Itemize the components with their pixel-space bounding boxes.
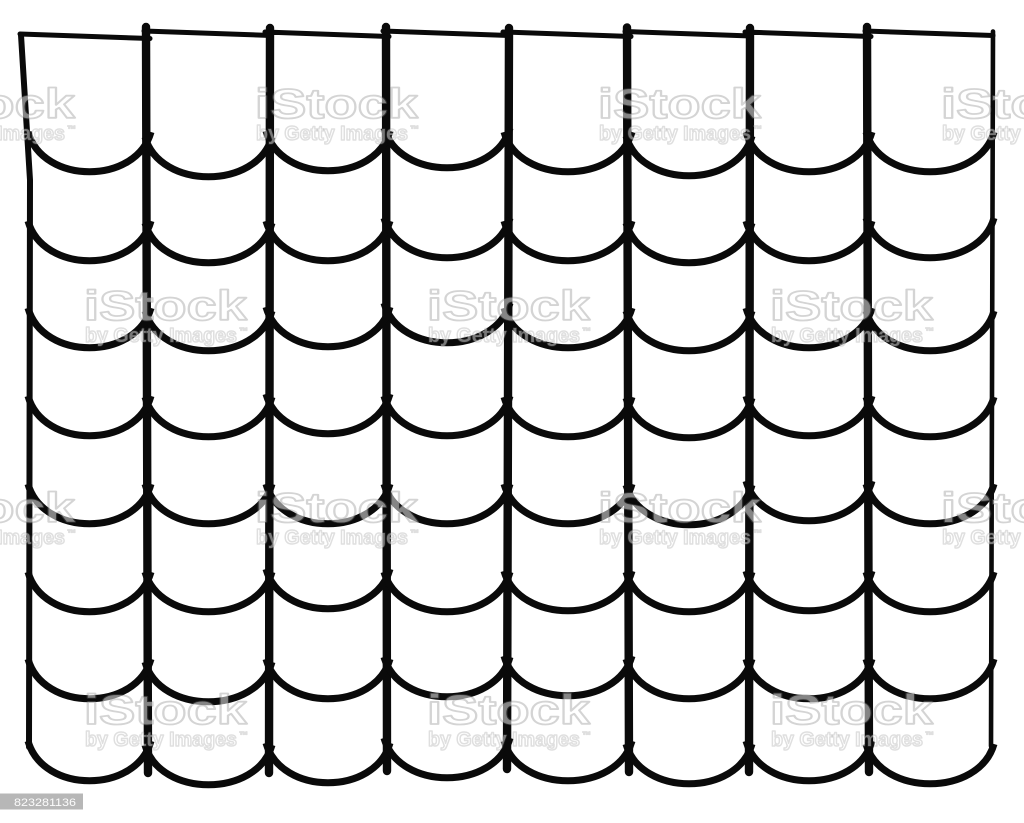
svg-text:iStock: iStock xyxy=(255,80,419,127)
svg-text:™: ™ xyxy=(410,124,419,134)
svg-text:iStock: iStock xyxy=(941,484,1024,531)
svg-text:iStock: iStock xyxy=(598,484,762,531)
svg-text:by Getty Images: by Getty Images xyxy=(428,325,580,347)
svg-text:iStock: iStock xyxy=(427,686,591,733)
svg-text:iStock: iStock xyxy=(255,484,419,531)
svg-text:™: ™ xyxy=(753,124,762,134)
svg-text:by Getty Images: by Getty Images xyxy=(256,123,408,145)
svg-text:by Getty Images: by Getty Images xyxy=(771,325,923,347)
svg-text:™: ™ xyxy=(239,326,248,336)
svg-text:iStock: iStock xyxy=(427,282,591,329)
svg-text:iStock: iStock xyxy=(0,484,76,531)
svg-text:™: ™ xyxy=(239,730,248,740)
svg-text:by Getty Images: by Getty Images xyxy=(85,729,237,751)
svg-text:™: ™ xyxy=(67,124,76,134)
svg-text:™: ™ xyxy=(67,528,76,538)
svg-text:by Getty Images: by Getty Images xyxy=(0,527,65,549)
svg-text:iStock: iStock xyxy=(0,80,76,127)
svg-text:by Getty Images: by Getty Images xyxy=(599,123,751,145)
svg-text:by Getty Images: by Getty Images xyxy=(942,527,1024,549)
svg-text:iStock: iStock xyxy=(84,686,248,733)
svg-text:™: ™ xyxy=(410,528,419,538)
svg-text:™: ™ xyxy=(753,528,762,538)
svg-text:by Getty Images: by Getty Images xyxy=(942,123,1024,145)
svg-text:™: ™ xyxy=(582,326,591,336)
svg-text:iStock: iStock xyxy=(598,80,762,127)
svg-text:by Getty Images: by Getty Images xyxy=(771,729,923,751)
svg-text:iStock: iStock xyxy=(770,686,934,733)
svg-text:™: ™ xyxy=(925,730,934,740)
svg-text:by Getty Images: by Getty Images xyxy=(85,325,237,347)
svg-text:by Getty Images: by Getty Images xyxy=(256,527,408,549)
svg-text:™: ™ xyxy=(925,326,934,336)
svg-text:by Getty Images: by Getty Images xyxy=(0,123,65,145)
svg-text:™: ™ xyxy=(582,730,591,740)
svg-text:iStock: iStock xyxy=(941,80,1024,127)
svg-text:iStock: iStock xyxy=(84,282,248,329)
svg-text:iStock: iStock xyxy=(770,282,934,329)
svg-text:823281136: 823281136 xyxy=(14,797,76,809)
svg-text:by Getty Images: by Getty Images xyxy=(428,729,580,751)
svg-text:by Getty Images: by Getty Images xyxy=(599,527,751,549)
